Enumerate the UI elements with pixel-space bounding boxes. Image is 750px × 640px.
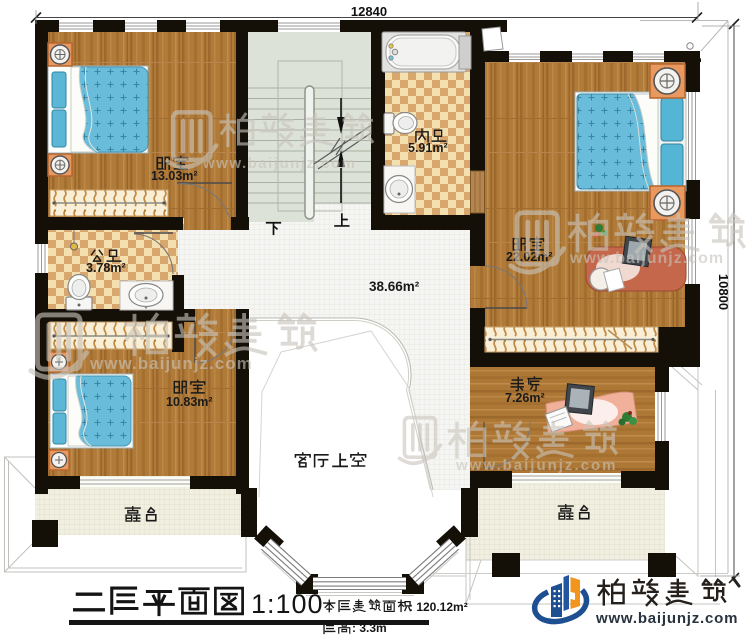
svg-text:38.66m²: 38.66m²	[369, 279, 420, 294]
svg-text:www.baijunjz.com: www.baijunjz.com	[569, 250, 724, 267]
svg-text:3.78m²: 3.78m²	[86, 261, 126, 275]
svg-text:10800: 10800	[716, 274, 731, 310]
svg-text:: 120.12m²: : 120.12m²	[409, 600, 468, 614]
svg-text:www.baijunjz.com: www.baijunjz.com	[455, 457, 617, 474]
svg-text:5.91m²: 5.91m²	[408, 141, 448, 155]
svg-text:www.baijunjz.com: www.baijunjz.com	[89, 354, 253, 373]
svg-text:www.baijunjz.com: www.baijunjz.com	[202, 155, 356, 172]
svg-text:13.03m²: 13.03m²	[151, 169, 198, 183]
svg-text:12840: 12840	[351, 4, 387, 19]
svg-text:1:100: 1:100	[251, 589, 324, 619]
svg-text:: 3.3m: : 3.3m	[352, 621, 387, 635]
svg-text:7.26m²: 7.26m²	[505, 391, 545, 405]
svg-text:www.baijunjz.com: www.baijunjz.com	[595, 610, 738, 627]
svg-text:10.83m²: 10.83m²	[166, 395, 213, 409]
